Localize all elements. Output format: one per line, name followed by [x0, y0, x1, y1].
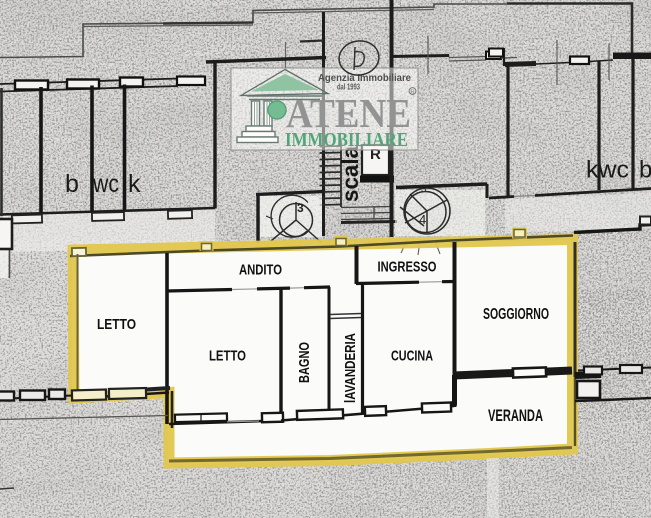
svg-text:BAGNO: BAGNO — [296, 342, 313, 383]
svg-text:LETTO: LETTO — [97, 316, 136, 333]
svg-text:ANDITO: ANDITO — [239, 262, 282, 279]
svg-text:scala: scala — [337, 146, 363, 202]
svg-text:lAVANDERIA: lAVANDERIA — [342, 333, 359, 403]
svg-text:INGRESSO: INGRESSO — [378, 258, 437, 275]
svg-text:CUCINA: CUCINA — [391, 348, 433, 365]
svg-text:k: k — [128, 170, 141, 198]
svg-text:4: 4 — [419, 212, 426, 227]
svg-text:SOGGIORNO: SOGGIORNO — [483, 306, 549, 323]
svg-text:dal 1993: dal 1993 — [337, 83, 360, 92]
svg-text:wc: wc — [92, 170, 119, 198]
svg-text:LETTO: LETTO — [209, 348, 246, 365]
svg-text:kwc: kwc — [586, 157, 629, 184]
svg-text:R: R — [410, 89, 414, 95]
svg-text:IMMOBILIARE: IMMOBILIARE — [285, 129, 408, 151]
svg-text:VERANDA: VERANDA — [488, 407, 543, 425]
svg-text:b: b — [65, 170, 79, 198]
svg-text:3: 3 — [297, 201, 304, 215]
svg-text:b: b — [639, 157, 651, 184]
